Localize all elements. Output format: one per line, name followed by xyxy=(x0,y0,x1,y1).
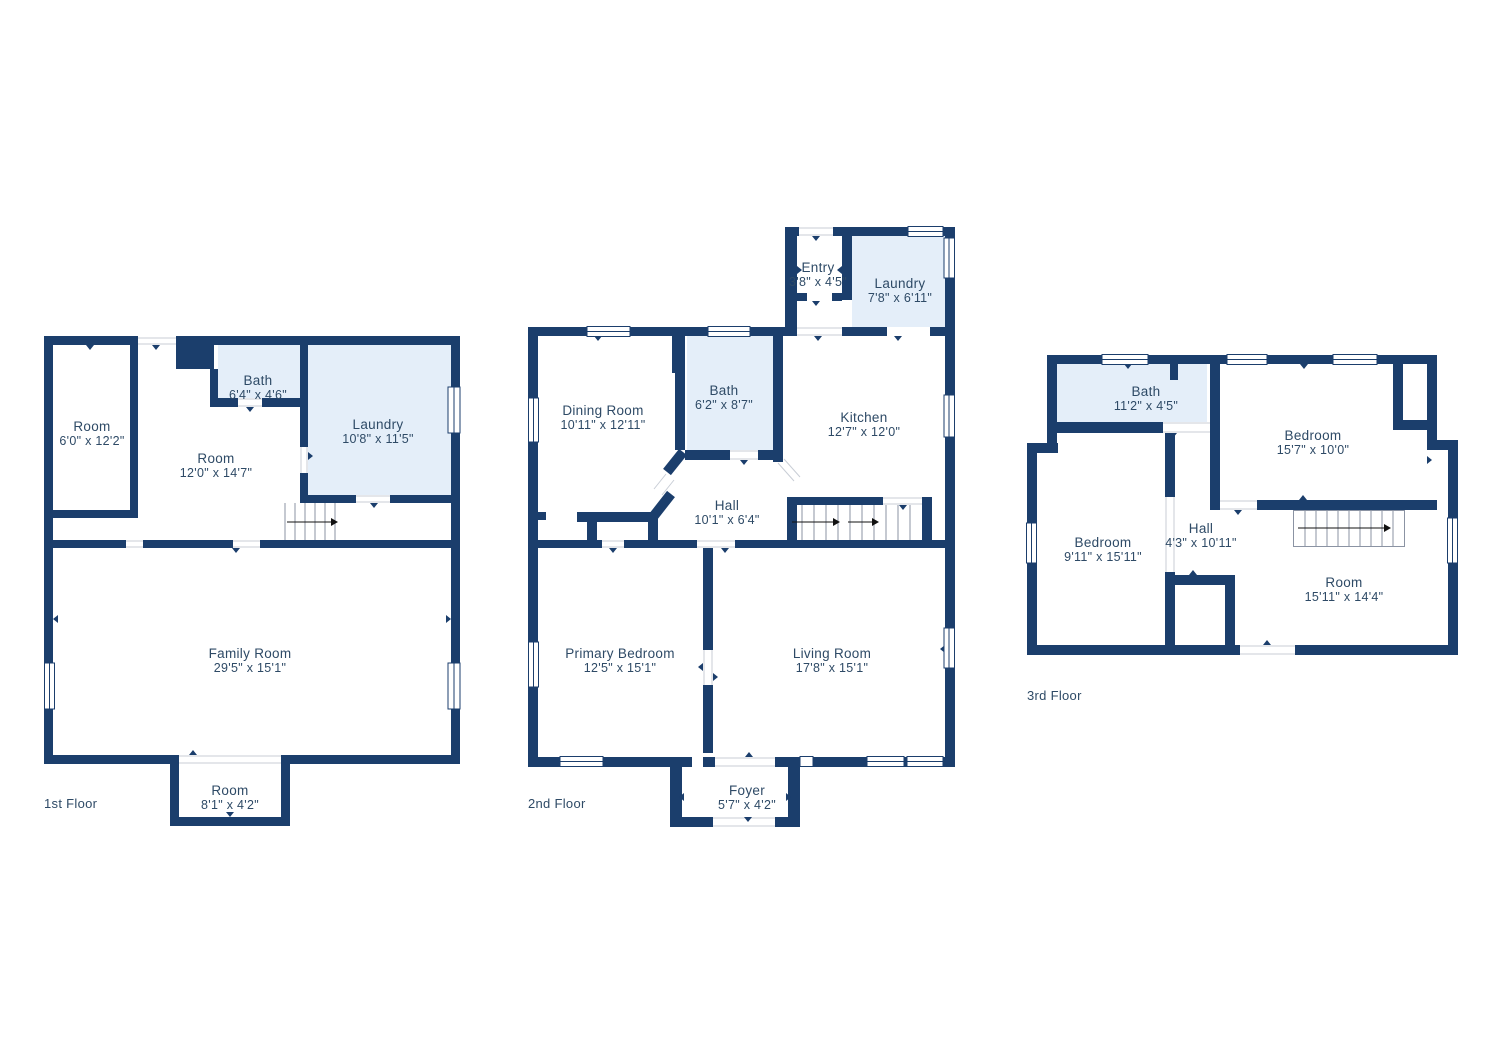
room-name: Foyer xyxy=(718,783,776,798)
room-label: Kitchen 12'7" x 12'0" xyxy=(828,410,900,440)
room-label: Hall 10'1" x 6'4" xyxy=(694,498,759,528)
room-name: Bedroom xyxy=(1277,428,1349,443)
room-name: Kitchen xyxy=(828,410,900,425)
room-name: Primary Bedroom xyxy=(565,646,675,661)
room-name: Room xyxy=(1305,575,1384,590)
room-label: Bedroom 9'11" x 15'11" xyxy=(1064,535,1142,565)
room-label: Room 8'1" x 4'2" xyxy=(201,783,259,813)
room-name: Family Room xyxy=(209,646,292,661)
staircase xyxy=(1294,511,1405,547)
room-label: Family Room 29'5" x 15'1" xyxy=(209,646,292,676)
room-name: Room xyxy=(201,783,259,798)
room-name: Room xyxy=(59,419,124,434)
room-name: Bath xyxy=(1114,384,1178,399)
floor-2-plan: Entry 3'8" x 4'5" Laundry 7'8" x 6'11" D… xyxy=(528,225,955,827)
room-label: Laundry 10'8" x 11'5" xyxy=(342,417,414,447)
room-label: Room 12'0" x 14'7" xyxy=(180,451,252,481)
room-name: Bath xyxy=(695,383,753,398)
room-label: Laundry 7'8" x 6'11" xyxy=(868,276,932,306)
room-label: Primary Bedroom 12'5" x 15'1" xyxy=(565,646,675,676)
floor-label: 3rd Floor xyxy=(1027,688,1082,703)
room-name: Room xyxy=(180,451,252,466)
staircase xyxy=(285,503,338,540)
room-dims: 6'4" x 4'6" xyxy=(229,388,287,403)
floor-3-plan: Bath 11'2" x 4'5" Bedroom 15'7" x 10'0" … xyxy=(1025,353,1458,655)
room-label: Dining Room 10'11" x 12'11" xyxy=(560,403,645,433)
room-dims: 9'11" x 15'11" xyxy=(1064,550,1142,565)
floor-label: 2nd Floor xyxy=(528,796,586,811)
room-dims: 3'8" x 4'5" xyxy=(789,275,847,290)
room-label: Bath 6'2" x 8'7" xyxy=(695,383,753,413)
room-name: Entry xyxy=(789,260,847,275)
floor-1-drawing xyxy=(44,336,460,827)
room-label: Bath 6'4" x 4'6" xyxy=(229,373,287,403)
room-name: Bath xyxy=(229,373,287,388)
room-dims: 6'2" x 8'7" xyxy=(695,398,753,413)
room-label: Hall 4'3" x 10'11" xyxy=(1165,521,1237,551)
room-label: Foyer 5'7" x 4'2" xyxy=(718,783,776,813)
room-dims: 10'11" x 12'11" xyxy=(560,418,645,433)
room-name: Laundry xyxy=(868,276,932,291)
staircase xyxy=(792,505,910,540)
room-dims: 15'7" x 10'0" xyxy=(1277,443,1349,458)
room-name: Bedroom xyxy=(1064,535,1142,550)
room-dims: 15'11" x 14'4" xyxy=(1305,590,1384,605)
room-dims: 8'1" x 4'2" xyxy=(201,798,259,813)
room-dims: 10'8" x 11'5" xyxy=(342,432,414,447)
room-dims: 17'8" x 15'1" xyxy=(793,661,871,676)
room-dims: 29'5" x 15'1" xyxy=(209,661,292,676)
room-dims: 12'0" x 14'7" xyxy=(180,466,252,481)
room-label: Bath 11'2" x 4'5" xyxy=(1114,384,1178,414)
floor-1-plan: Room 6'0" x 12'2" Bath 6'4" x 4'6" Room … xyxy=(44,336,460,827)
room-dims: 10'1" x 6'4" xyxy=(694,513,759,528)
room-label: Entry 3'8" x 4'5" xyxy=(789,260,847,290)
floor-3-drawing xyxy=(1025,353,1458,655)
room-dims: 12'7" x 12'0" xyxy=(828,425,900,440)
floor-plan-canvas: Room 6'0" x 12'2" Bath 6'4" x 4'6" Room … xyxy=(0,0,1500,1059)
room-dims: 12'5" x 15'1" xyxy=(565,661,675,676)
bath-fill xyxy=(218,345,451,495)
room-name: Laundry xyxy=(342,417,414,432)
room-dims: 6'0" x 12'2" xyxy=(59,434,124,449)
room-label: Living Room 17'8" x 15'1" xyxy=(793,646,871,676)
room-name: Hall xyxy=(694,498,759,513)
room-dims: 4'3" x 10'11" xyxy=(1165,536,1237,551)
room-dims: 7'8" x 6'11" xyxy=(868,291,932,306)
room-label: Room 6'0" x 12'2" xyxy=(59,419,124,449)
room-label: Bedroom 15'7" x 10'0" xyxy=(1277,428,1349,458)
room-dims: 5'7" x 4'2" xyxy=(718,798,776,813)
floor-label: 1st Floor xyxy=(44,796,97,811)
room-name: Hall xyxy=(1165,521,1237,536)
room-label: Room 15'11" x 14'4" xyxy=(1305,575,1384,605)
room-dims: 11'2" x 4'5" xyxy=(1114,399,1178,414)
room-name: Living Room xyxy=(793,646,871,661)
room-name: Dining Room xyxy=(560,403,645,418)
